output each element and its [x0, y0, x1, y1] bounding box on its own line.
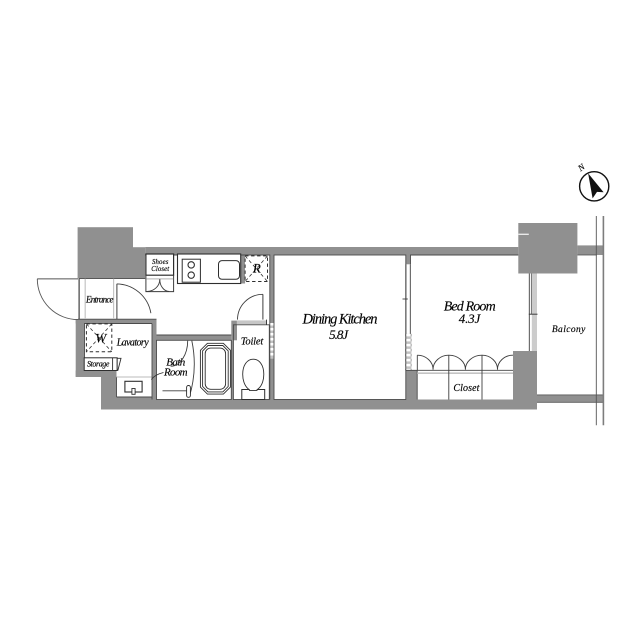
svg-text:Storage: Storage: [87, 359, 110, 368]
svg-text:Entrance: Entrance: [85, 294, 114, 304]
svg-text:R: R: [252, 260, 261, 275]
svg-text:Shoes: Shoes: [152, 259, 169, 266]
svg-text:Lavatory: Lavatory: [116, 338, 150, 349]
svg-text:Balcony: Balcony: [552, 325, 586, 335]
svg-text:Toilet: Toilet: [241, 336, 265, 347]
svg-text:4.3J: 4.3J: [459, 311, 482, 326]
svg-text:W: W: [95, 331, 107, 346]
svg-text:5.8J: 5.8J: [329, 327, 349, 342]
svg-text:Room: Room: [163, 367, 188, 379]
svg-text:Closet: Closet: [453, 383, 479, 394]
svg-text:Closet: Closet: [151, 266, 170, 273]
svg-text:Dining Kitchen: Dining Kitchen: [302, 312, 378, 328]
